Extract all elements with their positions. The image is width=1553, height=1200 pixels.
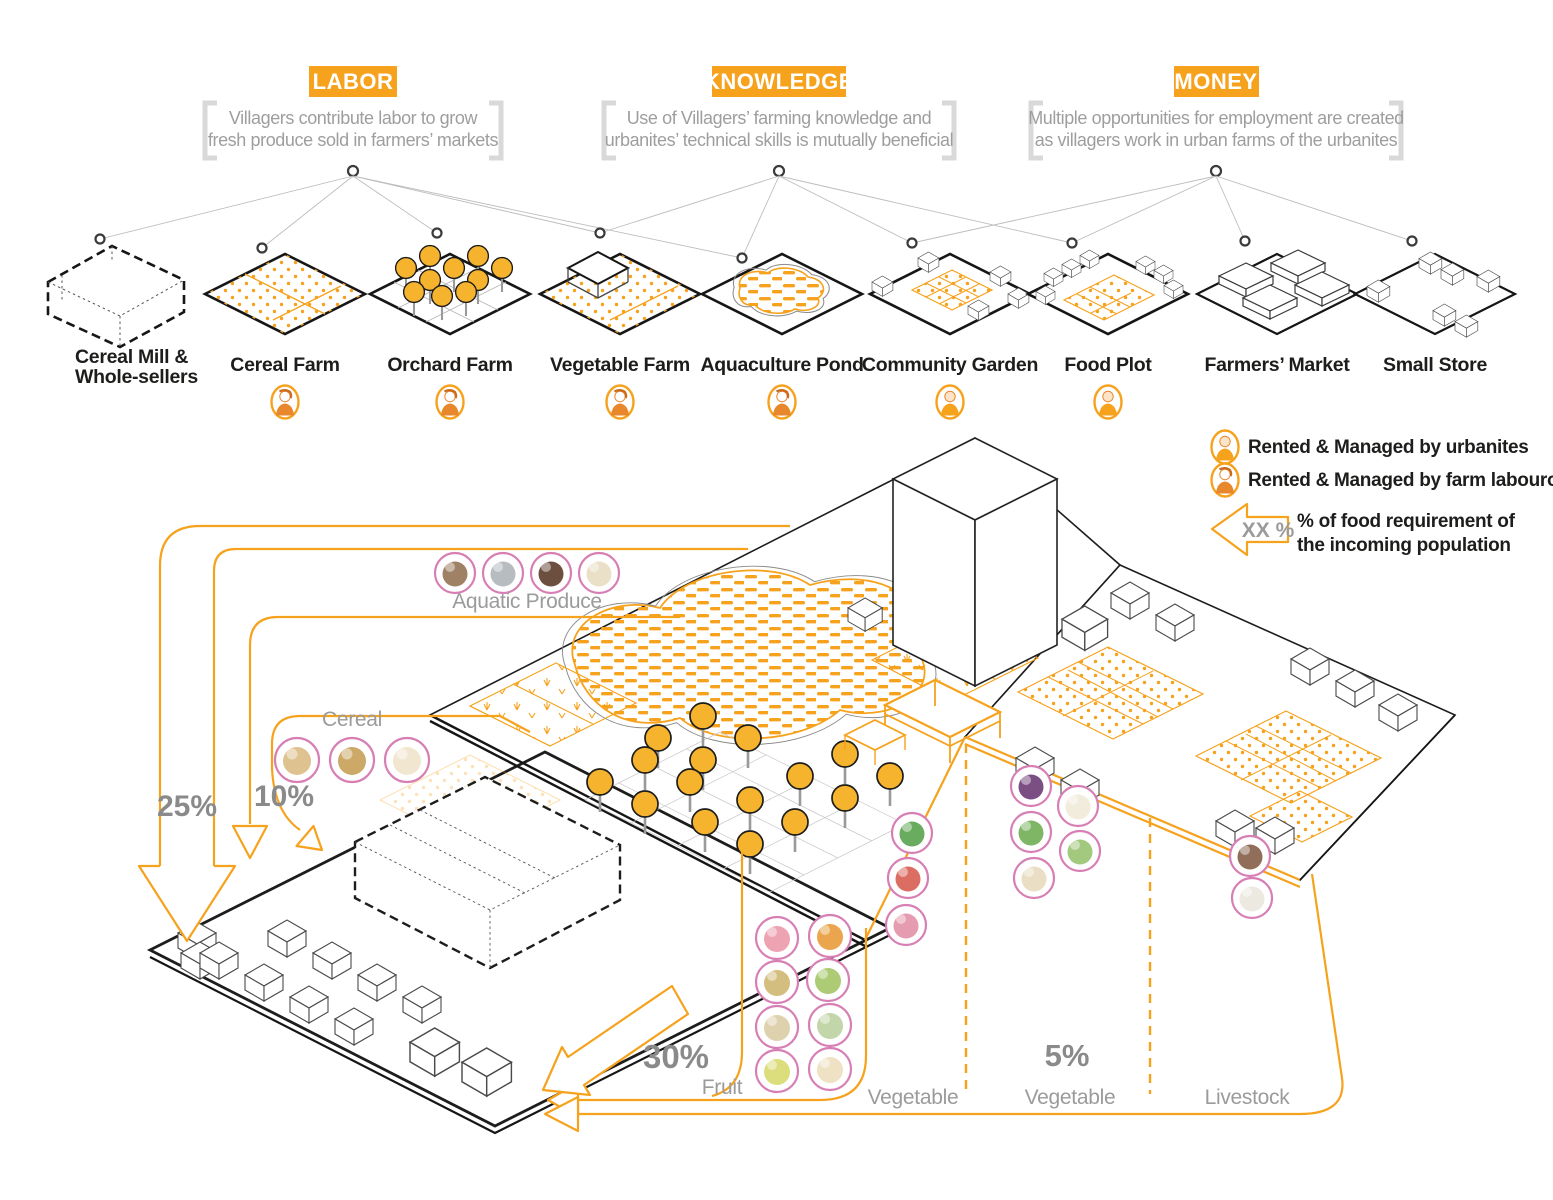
farm-labourer-icon: [437, 386, 464, 419]
produce-item-cabbage: [1060, 831, 1100, 871]
produce-item-jackfruit: [756, 961, 798, 1003]
facility-label-vegetable-farm: Vegetable Farm: [550, 354, 690, 376]
money-title: MONEY: [1174, 69, 1257, 94]
facility-label-cereal-farm: Cereal Farm: [230, 354, 339, 376]
labor-description-line2: fresh produce sold in farmers’ markets: [208, 130, 499, 150]
produce-group-vegetable-fresh: [886, 813, 932, 945]
money-node: [1211, 166, 1221, 176]
produce-item-radish: [886, 905, 926, 945]
concept-money: MONEY Multiple opportunities for employm…: [1028, 66, 1404, 176]
facility-icon-cereal-mill: [48, 246, 184, 347]
produce-item-soybean: [275, 738, 319, 782]
produce-item-mango: [809, 915, 851, 957]
facility-label-orchard-farm: Orchard Farm: [387, 354, 512, 376]
produce-item-lime: [807, 959, 849, 1001]
legend-urbanite-label: Rented & Managed by urbanites: [1248, 437, 1529, 458]
urbanite-icon: [1212, 431, 1239, 464]
flow-label-aquatic: Aquatic Produce: [452, 590, 602, 613]
facility-icon-small-store: [1355, 252, 1515, 337]
produce-item-tilapia: [483, 553, 523, 593]
flow-label-livestock: Livestock: [1205, 1086, 1291, 1109]
produce-item-tomato: [888, 858, 928, 898]
facility-icon-vegetable-farm: [540, 252, 700, 334]
percent-5: 5%: [1045, 1038, 1090, 1073]
legend-arrow-line2: the incoming population: [1297, 535, 1511, 556]
money-description-line2: as villagers work in urban farms of the …: [1035, 130, 1398, 150]
facility-icon-farmers-market: [1197, 250, 1357, 334]
facility-icon-orchard-farm: [370, 246, 530, 334]
produce-item-poultry: [1232, 878, 1272, 918]
produce-item-guava: [756, 917, 798, 959]
knowledge-title: KNOWLEDGE: [704, 69, 854, 94]
labor-description-line1: Villagers contribute labor to grow: [229, 108, 479, 128]
facility-icon-food-plot: [1028, 250, 1188, 334]
legend-labourer-label: Rented & Managed by farm labouror: [1248, 470, 1553, 491]
urban-farming-diagram: LABOR Villagers contribute labor to grow…: [0, 0, 1553, 1200]
percent-25: 25%: [157, 790, 217, 823]
farm-labourer-icon: [607, 386, 634, 419]
produce-item-bael-fruit: [756, 1006, 798, 1048]
concept-connectors: [100, 176, 1412, 258]
produce-item-wheat: [330, 738, 374, 782]
flow-label-fruit: Fruit: [702, 1076, 743, 1099]
facility-label-farmers-market: Farmers’ Market: [1204, 354, 1350, 376]
concept-labor: LABOR Villagers contribute labor to grow…: [205, 66, 501, 176]
farm-labourer-icon: [1212, 464, 1239, 497]
facility-icon-community-garden: [870, 252, 1030, 334]
tower-building: [893, 438, 1057, 686]
farm-labourer-icon: [272, 386, 299, 419]
flow-arrowhead-aquatic-2: [233, 826, 267, 858]
produce-item-cauliflower: [1058, 786, 1098, 826]
flow-arrowhead-10: [297, 826, 323, 850]
facility-manager-badges: [272, 386, 1122, 419]
labor-title: LABOR: [313, 69, 394, 94]
facility-label-food-plot: Food Plot: [1064, 354, 1152, 376]
diagram-canvas: LABOR Villagers contribute labor to grow…: [0, 0, 1553, 1200]
urbanite-icon: [1095, 386, 1122, 419]
produce-group-livestock: [1230, 836, 1272, 918]
facility-label-cereal-mill-line2: Whole-sellers: [75, 366, 198, 388]
facility-label-community-garden: Community Garden: [862, 354, 1038, 376]
produce-item-cattle: [1230, 836, 1270, 876]
produce-item-white-beans: [1014, 858, 1054, 898]
facility-label-small-store: Small Store: [1383, 354, 1487, 376]
knowledge-description-line2: urbanites’ technical skills is mutually …: [605, 130, 954, 150]
produce-item-okra: [1011, 812, 1051, 852]
produce-item-lotus-root: [579, 553, 619, 593]
facility-label-aquaculture-pond: Aquaculture Pond: [700, 354, 863, 376]
concept-knowledge: KNOWLEDGE Use of Villagers’ farming know…: [604, 66, 954, 176]
produce-item-pear: [756, 1050, 798, 1092]
produce-item-carp: [435, 553, 475, 593]
produce-item-leafy-greens: [892, 813, 932, 853]
knowledge-description-line1: Use of Villagers’ farming knowledge and: [627, 108, 932, 128]
produce-group-aquatic: Aquatic Produce: [435, 553, 619, 613]
facility-labels: Cereal Mill & Whole-sellers Cereal Farm …: [75, 346, 1487, 388]
flow-label-vegetable-garden: Vegetable: [1025, 1086, 1116, 1109]
flow-label-cereal: Cereal: [322, 708, 382, 731]
labor-node: [348, 166, 358, 176]
farm-labourer-icon: [769, 386, 796, 419]
legend-arrow-value: XX %: [1242, 519, 1295, 542]
facility-label-cereal-mill-line1: Cereal Mill &: [75, 346, 188, 368]
flow-label-vegetable-fresh: Vegetable: [868, 1086, 959, 1109]
legend-arrow-line1: % of food requirement of: [1297, 511, 1516, 532]
produce-item-rice: [385, 738, 429, 782]
produce-item-eggplant: [1011, 766, 1051, 806]
produce-item-water-chestnut: [531, 553, 571, 593]
facility-icon-cereal-farm: [205, 254, 365, 334]
legend: Rented & Managed by urbanites Rented & M…: [1212, 431, 1553, 557]
facility-icon-aquaculture-pond: [702, 254, 862, 334]
percent-30: 30%: [643, 1038, 709, 1075]
knowledge-node: [774, 166, 784, 176]
urbanite-icon: [937, 386, 964, 419]
produce-item-cashew: [809, 1048, 851, 1090]
money-description-line1: Multiple opportunities for employment ar…: [1028, 108, 1404, 128]
produce-item-custard-apple: [809, 1004, 851, 1046]
aquaculture-pond: [572, 570, 924, 738]
percent-10: 10%: [254, 780, 314, 813]
produce-group-cereal: Cereal: [275, 708, 429, 782]
